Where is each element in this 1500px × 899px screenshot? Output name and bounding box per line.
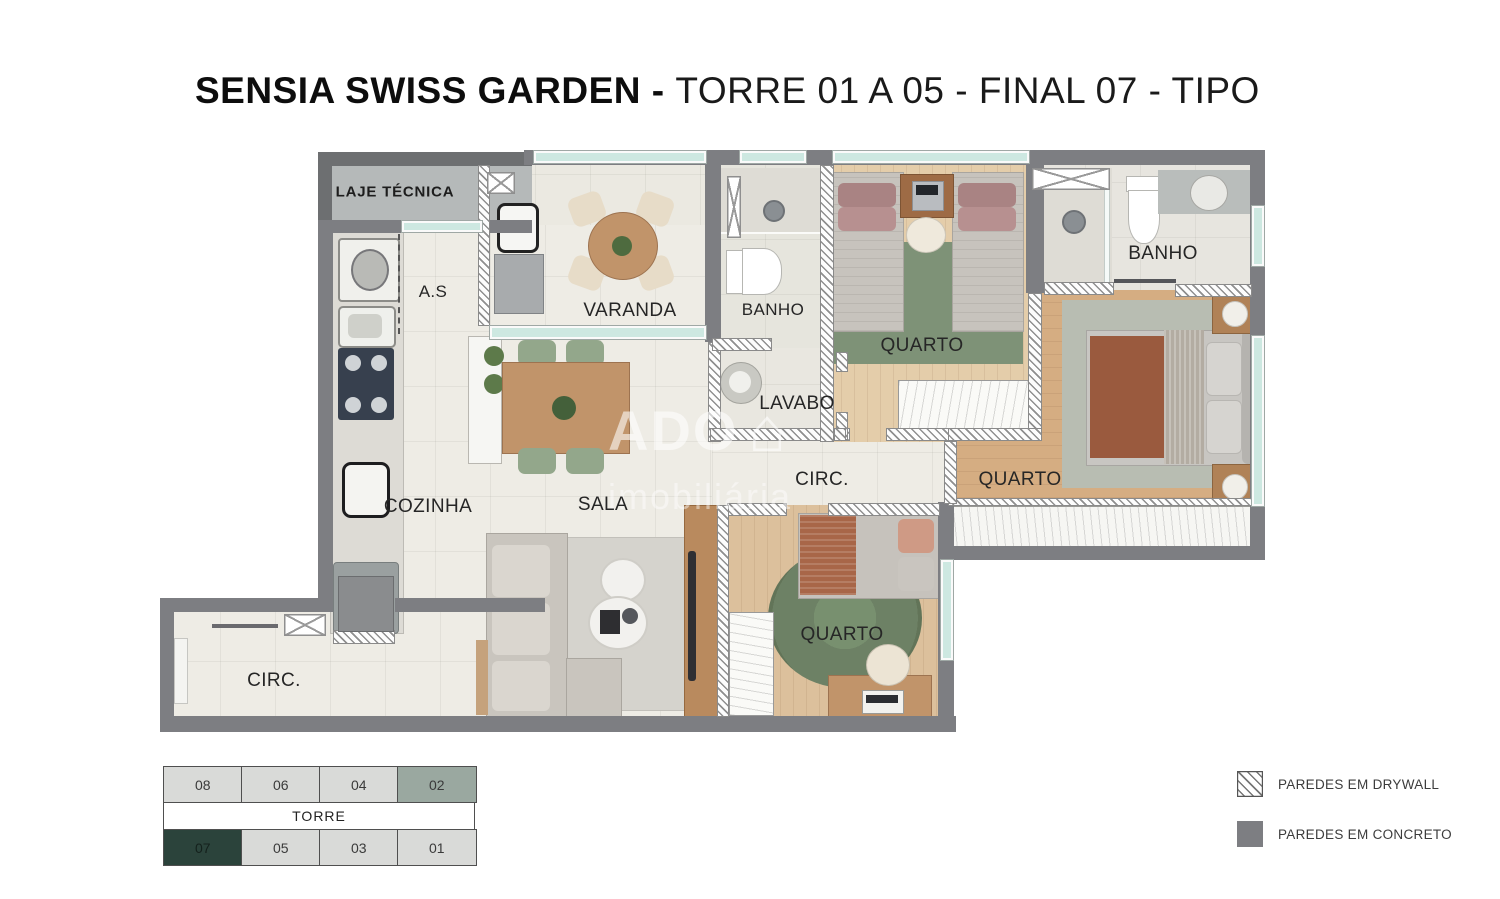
wall-corridor-top-b [395,598,545,612]
entry-door-leaf [338,576,394,632]
kitchen-sink [342,462,390,518]
sofa-cushion [492,661,550,711]
dining-chair [518,448,556,474]
tower-unit-05: 05 [241,829,321,866]
lamp-icon [1222,474,1248,500]
toilet-social-bowl [742,248,782,295]
dining-chair [566,448,604,474]
washing-machine [338,238,400,302]
wall-left [318,228,333,612]
label-lavabo: LAVABO [759,393,835,415]
legend-concrete-label: PAREDES EM CONCRETO [1278,827,1452,842]
shaft-box-entry [284,614,326,636]
drywall-single-top-b [828,503,940,516]
basin-bowl [729,371,751,393]
twin-bed-pillow [838,183,896,207]
cooktop [338,348,394,420]
page-title: SENSIA SWISS GARDEN - TORRE 01 A 05 - FI… [195,70,1260,112]
sofa-side-table [476,640,488,715]
entry-coat-rack [212,624,278,628]
label-banho-suite: BANHO [1128,243,1198,265]
label-cozinha: COZINHA [384,496,472,518]
tower-unit-08: 08 [163,766,243,803]
toilet-suite-bowl [1128,190,1160,244]
laje-top-wall [318,152,532,166]
decor-bowl [622,608,638,624]
master-blanket-rust [1090,336,1164,458]
as-divider-dashed [398,234,400,334]
tower-unit-07: 07 [163,829,243,866]
keyboard-icon [862,690,904,714]
window-varanda-top [534,151,706,163]
burner-icon [371,355,387,371]
suite-door-leaf [1114,279,1176,283]
label-quarto-casal: QUARTO [979,469,1062,491]
shaft-box-varanda [487,172,515,194]
master-wardrobe-front [948,498,1252,506]
tower-unit-06: 06 [241,766,321,803]
laundry-tank [338,306,396,348]
tower-unit-03: 03 [319,829,399,866]
master-pillow [1206,342,1242,396]
tower-unit-02: 02 [397,766,477,803]
twin-bed-pillow [958,183,1016,207]
decor-tray [600,610,620,634]
drywall-master-left-lower [944,441,957,504]
single-wardrobe [729,612,774,716]
window-suite-right [1252,206,1264,266]
page-title-sub: TORRE 01 A 05 - FINAL 07 - TIPO [675,70,1259,111]
label-circ-interna: CIRC. [795,469,849,491]
twin-wardrobe [898,380,1030,434]
sofa-chaise [566,658,622,717]
burner-icon [345,355,361,371]
burner-icon [345,397,361,413]
coffee-table [588,596,648,650]
lavabo-basin [720,362,762,404]
shaft-box-suite [1032,168,1110,190]
plant-pot [484,374,504,394]
drywall-single-left [717,505,729,717]
drywall-single-top-a [727,503,787,516]
drywall-master-horiz [948,428,1042,441]
lamp-icon [1222,301,1248,327]
laptop-icon [912,181,944,211]
drywall-bath-social-bottom [712,338,772,351]
shower-glass [1104,178,1110,288]
legend-drywall-label: PAREDES EM DRYWALL [1278,777,1439,792]
showerhead-icon [763,200,785,222]
tv-icon [688,551,696,681]
laptop-keys [916,185,938,195]
burner-icon [371,397,387,413]
twin-bed-pillow [958,207,1016,231]
shaft-box-banho [727,176,741,238]
plant-pot [484,346,504,366]
keyboard-keys [866,695,898,703]
label-sala: SALA [578,494,628,516]
single-pillow [898,519,934,553]
label-quarto-duplo: QUARTO [881,335,964,357]
twin-desk-stool [906,217,946,253]
wall-corridor-top-a [160,598,332,612]
single-pillow [898,557,934,591]
single-blanket-rust [800,515,856,595]
laje-window [402,221,482,232]
drywall-bath-left-lower [708,342,721,442]
window-banho-social-top [740,151,806,163]
tower-key-plan: 08 06 04 02 TORRE 07 05 03 01 [163,766,475,866]
tower-unit-04: 04 [319,766,399,803]
tower-row-bottom: 07 05 03 01 [163,829,475,866]
concrete-swatch-icon [1237,821,1263,847]
drywall-swatch-icon [1237,771,1263,797]
master-wardrobe [948,506,1254,550]
window-master-right [1252,336,1264,506]
tower-unit-01: 01 [397,829,477,866]
label-circ-entrada: CIRC. [247,670,301,692]
twin-bed-pillow [838,207,896,231]
entry-niche [174,638,188,704]
window-varanda-living [490,326,706,339]
single-desk-chair [866,644,910,686]
wall-corridor-cap [160,598,174,732]
varanda-plant [612,236,632,256]
legend-item-concrete: PAREDES EM CONCRETO [1237,821,1452,847]
master-pillow [1206,400,1242,454]
sofa-cushion [492,545,550,597]
label-banho-social: BANHO [742,300,804,320]
drywall-suite-bottom-b [1175,284,1252,297]
drywall-twins-bottom-a [834,428,846,441]
wall-bottom [160,716,956,732]
tower-row-top: 08 06 04 02 [163,766,475,803]
drywall-suite-bottom-a [1044,282,1114,295]
drywall-lavabo-right-a [836,352,848,372]
label-varanda: VARANDA [583,300,676,322]
label-laje-tecnica: LAJE TÉCNICA [336,184,455,201]
wall-varanda-right [705,150,721,342]
laje-left-wall [318,152,332,230]
master-throw-fur [1164,330,1204,464]
window-single-right [941,560,953,660]
window-twins-top [833,151,1029,163]
showerhead-icon [1062,210,1086,234]
suite-sink [1190,175,1228,211]
entry-threshold [333,630,395,644]
label-servico: A.S [419,282,448,302]
wall-master-bottom [944,546,1265,560]
legend-item-drywall: PAREDES EM DRYWALL [1237,771,1439,797]
label-quarto-solteiro: QUARTO [801,624,884,646]
tank-bowl [348,314,382,338]
tower-label: TORRE [163,803,475,829]
dining-table-plant [552,396,576,420]
washer-drum-icon [351,249,389,291]
drywall-master-left-upper [1028,293,1042,435]
gourmet-cabinet [494,254,544,314]
page-title-main: SENSIA SWISS GARDEN - [195,70,675,111]
floorplan-page: { "title": { "main": "SENSIA SWISS GARDE… [0,0,1500,899]
